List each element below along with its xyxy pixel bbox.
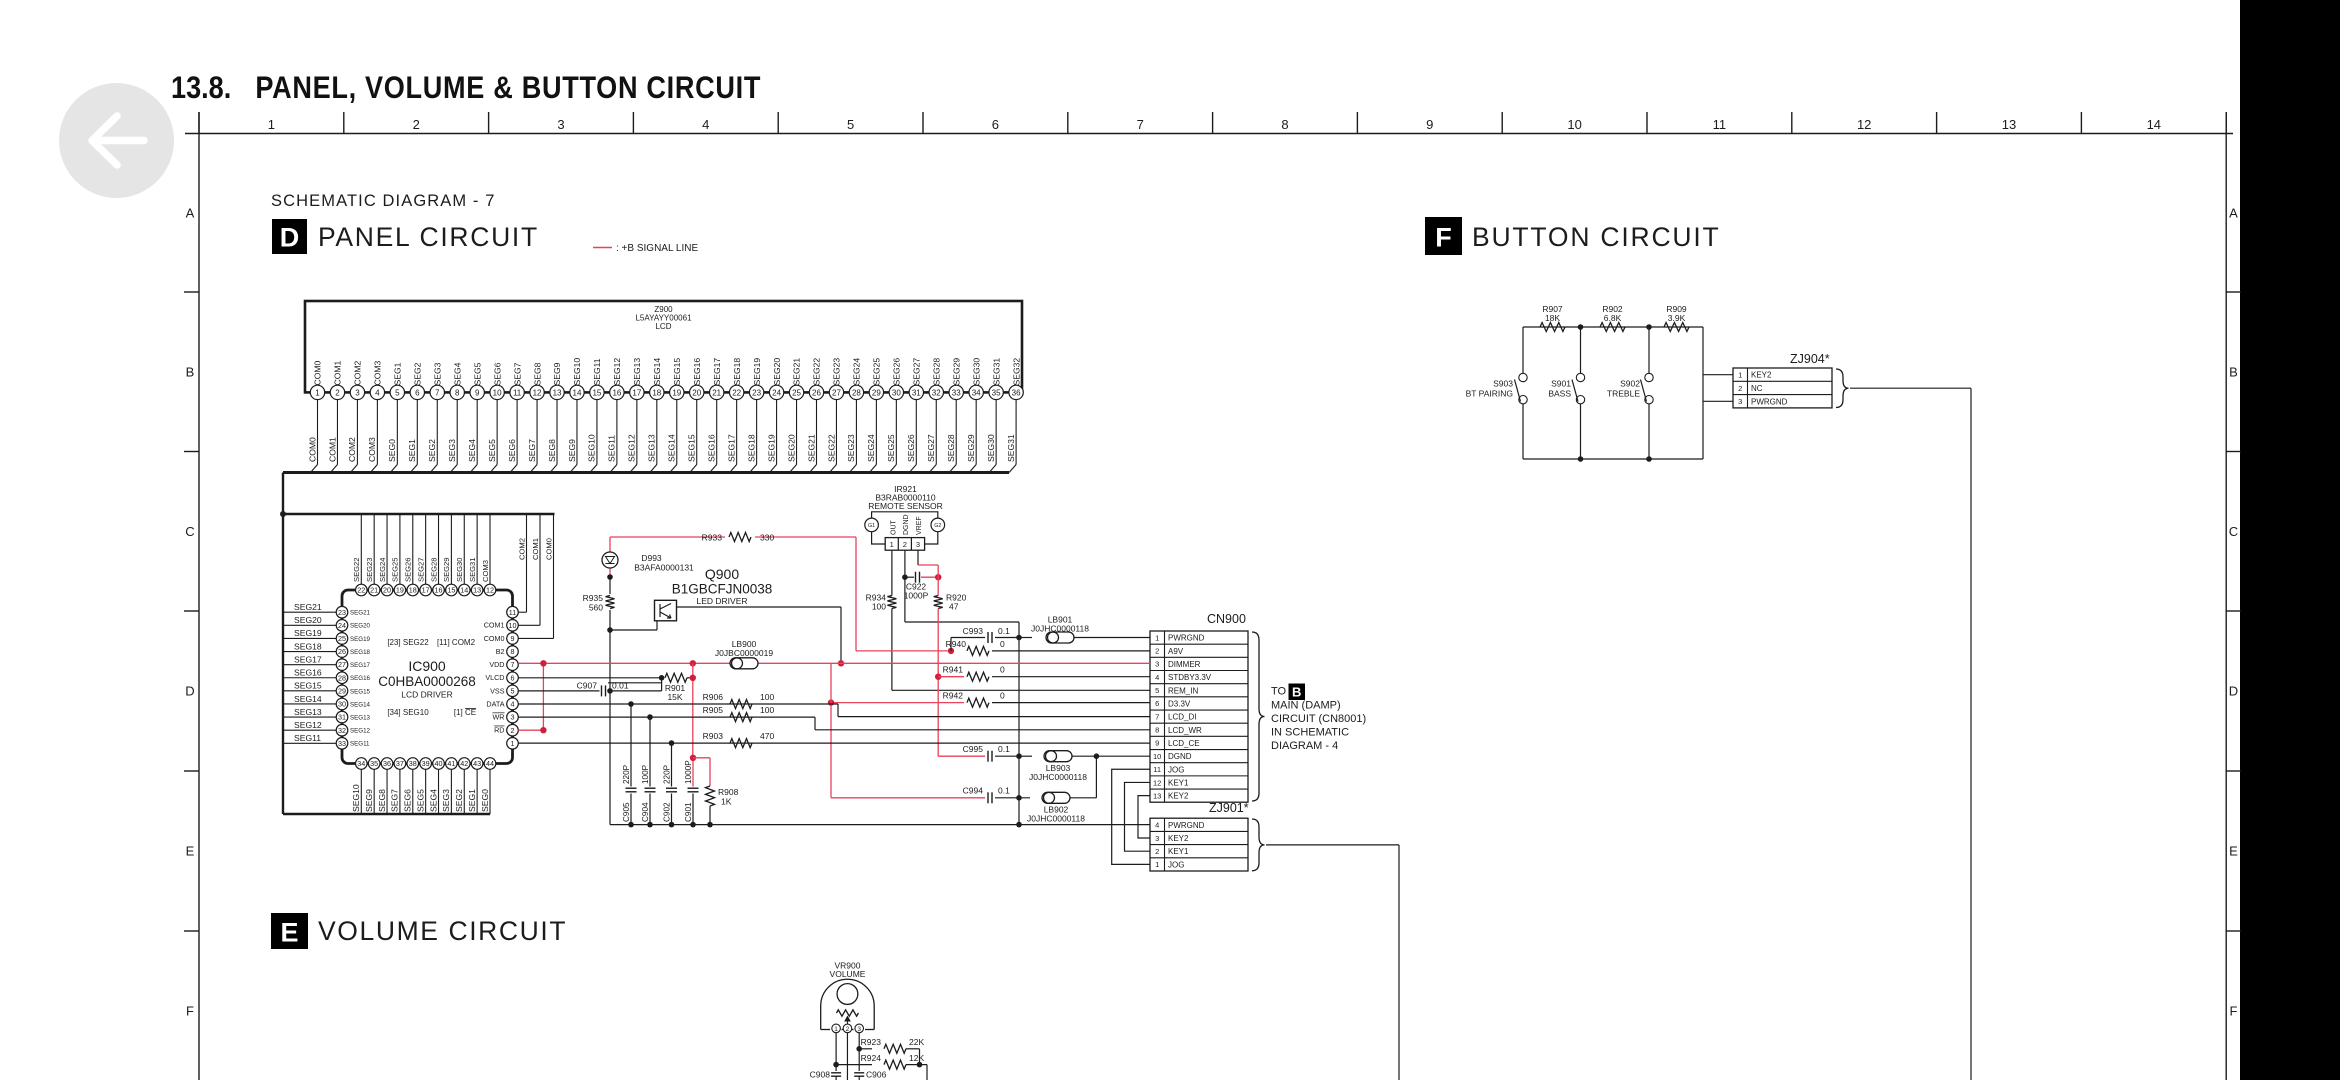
svg-text:SEG22: SEG22: [826, 434, 836, 462]
svg-text:4: 4: [375, 388, 380, 397]
svg-text:LCD_DI: LCD_DI: [1168, 713, 1196, 722]
svg-text:LCD: LCD: [655, 322, 671, 331]
svg-text:SEG14: SEG14: [350, 701, 371, 708]
svg-text:10: 10: [1153, 752, 1161, 761]
svg-text:J0JHC0000118: J0JHC0000118: [1029, 772, 1087, 782]
svg-text:SEG23: SEG23: [846, 434, 856, 462]
svg-text:2: 2: [1738, 384, 1742, 393]
svg-text:21: 21: [370, 586, 378, 595]
svg-text:0.01: 0.01: [612, 680, 629, 690]
svg-text:35: 35: [370, 759, 378, 768]
svg-text:7: 7: [511, 660, 515, 669]
svg-text:19: 19: [672, 388, 681, 397]
svg-text:TREBLE: TREBLE: [1607, 389, 1640, 399]
svg-text:38: 38: [409, 759, 417, 768]
svg-text:6: 6: [992, 117, 999, 132]
svg-text:2: 2: [335, 388, 340, 397]
svg-text:19: 19: [396, 586, 404, 595]
svg-text:SEG0: SEG0: [387, 439, 397, 462]
svg-text:E: E: [280, 918, 298, 948]
svg-text:C907: C907: [577, 680, 598, 690]
svg-text:COM3: COM3: [373, 360, 383, 385]
svg-text:ZJ901*: ZJ901*: [1209, 801, 1249, 815]
svg-text:SEG16: SEG16: [350, 675, 371, 682]
svg-text:COM3: COM3: [481, 560, 490, 582]
svg-text:KEY2: KEY2: [1168, 792, 1189, 801]
svg-text:SEG17: SEG17: [712, 358, 722, 386]
svg-text:SEG23: SEG23: [832, 358, 842, 386]
svg-text:C902: C902: [663, 802, 672, 822]
svg-text:SEG18: SEG18: [746, 434, 756, 462]
svg-text:SEG8: SEG8: [377, 789, 387, 812]
svg-text:MAIN (DAMP): MAIN (DAMP): [1271, 700, 1341, 712]
svg-text:BT PAIRING: BT PAIRING: [1466, 389, 1513, 399]
svg-text:SEG4: SEG4: [452, 362, 462, 385]
svg-text:8: 8: [511, 647, 515, 656]
svg-text:SEG28: SEG28: [946, 434, 956, 462]
svg-text:OUT: OUT: [890, 520, 897, 536]
svg-text:C995: C995: [963, 744, 984, 754]
svg-text:3: 3: [916, 540, 920, 549]
svg-text:14: 14: [460, 586, 468, 595]
svg-text:E: E: [186, 844, 195, 859]
svg-text:9: 9: [511, 634, 515, 643]
svg-text:7: 7: [1155, 712, 1159, 721]
svg-text:SEG18: SEG18: [350, 649, 371, 656]
svg-text:100P: 100P: [641, 764, 650, 784]
svg-text:15: 15: [592, 388, 601, 397]
svg-text:SCHEMATIC DIAGRAM - 7: SCHEMATIC DIAGRAM - 7: [271, 192, 495, 210]
svg-text:4: 4: [702, 117, 709, 132]
svg-text:SEG29: SEG29: [951, 358, 961, 386]
svg-text:12: 12: [1153, 778, 1161, 787]
svg-text:D: D: [2229, 684, 2238, 699]
svg-text:3: 3: [355, 388, 360, 397]
svg-text:6: 6: [1155, 699, 1159, 708]
svg-text:D: D: [280, 223, 300, 253]
svg-text:BASS: BASS: [1548, 389, 1571, 399]
svg-text:A: A: [2229, 206, 2238, 221]
svg-text:RD: RD: [494, 726, 504, 735]
svg-text:SEG21: SEG21: [792, 358, 802, 386]
svg-text:1: 1: [1155, 633, 1159, 642]
svg-text:C994: C994: [963, 786, 984, 796]
svg-text:2: 2: [1155, 647, 1159, 656]
svg-text:R933: R933: [702, 533, 723, 543]
svg-text:REM_IN: REM_IN: [1168, 686, 1198, 695]
svg-text:22: 22: [732, 388, 741, 397]
svg-text:SEG6: SEG6: [403, 789, 413, 812]
svg-text:SEG22: SEG22: [812, 358, 822, 386]
svg-text:SEG14: SEG14: [294, 694, 322, 704]
svg-text:29: 29: [872, 388, 881, 397]
svg-text:27: 27: [832, 388, 841, 397]
svg-text:SEG26: SEG26: [906, 434, 916, 462]
svg-text:2: 2: [903, 540, 907, 549]
svg-text:DGND: DGND: [903, 514, 910, 535]
svg-text:SEG27: SEG27: [912, 358, 922, 386]
svg-text:SEG15: SEG15: [687, 434, 697, 462]
svg-text:F: F: [1435, 223, 1452, 253]
svg-text:B: B: [186, 365, 195, 380]
svg-text:SEG2: SEG2: [427, 439, 437, 462]
svg-text:SEG12: SEG12: [350, 728, 371, 735]
svg-text:25: 25: [792, 388, 801, 397]
svg-text:22K: 22K: [909, 1037, 924, 1047]
svg-text:B2: B2: [496, 647, 505, 656]
svg-text:J0JHC0000118: J0JHC0000118: [1027, 814, 1085, 824]
svg-text:SEG21: SEG21: [350, 610, 371, 617]
svg-text:32: 32: [338, 726, 346, 735]
svg-text:330: 330: [760, 533, 774, 543]
svg-text:12: 12: [533, 388, 542, 397]
svg-text:18: 18: [409, 586, 417, 595]
svg-text:3: 3: [857, 1026, 861, 1033]
svg-text:VDD: VDD: [489, 660, 504, 669]
svg-text:PWRGND: PWRGND: [1168, 634, 1205, 643]
svg-text:SEG25: SEG25: [872, 358, 882, 386]
svg-text:SEG31: SEG31: [1006, 434, 1016, 462]
svg-text:8: 8: [455, 388, 460, 397]
svg-text:BUTTON CIRCUIT: BUTTON CIRCUIT: [1472, 222, 1720, 252]
svg-text:COM2: COM2: [517, 538, 526, 560]
svg-text:SEG14: SEG14: [667, 434, 677, 462]
svg-text:SEG13: SEG13: [647, 434, 657, 462]
svg-text:SEG21: SEG21: [294, 602, 322, 612]
svg-text:6: 6: [511, 673, 515, 682]
svg-text:0: 0: [1000, 691, 1005, 701]
svg-text:14: 14: [573, 388, 582, 397]
svg-text:R903: R903: [703, 731, 724, 741]
svg-text:4: 4: [1155, 821, 1159, 830]
svg-text:SEG12: SEG12: [627, 434, 637, 462]
svg-text:SEG13: SEG13: [294, 707, 322, 717]
svg-text:C904: C904: [641, 802, 650, 822]
svg-text:1: 1: [890, 540, 894, 549]
svg-text:J0JHC0000118: J0JHC0000118: [1031, 624, 1089, 634]
svg-text:10: 10: [509, 621, 517, 630]
svg-text:TO: TO: [1271, 686, 1287, 698]
svg-text:SEG16: SEG16: [692, 358, 702, 386]
svg-text:REMOTE SENSOR: REMOTE SENSOR: [868, 501, 943, 511]
svg-text:SEG14: SEG14: [652, 358, 662, 386]
svg-text:[1] CE: [1] CE: [454, 708, 476, 717]
svg-text:9: 9: [1426, 117, 1433, 132]
svg-text:COM0: COM0: [484, 634, 505, 643]
svg-text:SEG2: SEG2: [454, 789, 464, 812]
svg-text:SEG11: SEG11: [607, 435, 617, 462]
svg-text:SEG9: SEG9: [567, 439, 577, 462]
svg-text:SEG30: SEG30: [986, 434, 996, 462]
svg-text:SEG11: SEG11: [592, 358, 602, 385]
svg-text:COM1: COM1: [333, 360, 343, 385]
svg-text:5: 5: [847, 117, 854, 132]
svg-text:B: B: [2229, 365, 2238, 380]
svg-text:2: 2: [846, 1026, 850, 1033]
svg-text:47: 47: [949, 602, 959, 612]
svg-text:12K: 12K: [909, 1053, 924, 1063]
svg-text:KEY1: KEY1: [1168, 847, 1189, 856]
svg-text:COM1: COM1: [327, 437, 337, 462]
svg-text:16: 16: [612, 388, 621, 397]
svg-text:SEG11: SEG11: [294, 733, 321, 743]
svg-text:SEG17: SEG17: [294, 654, 322, 664]
svg-text:3: 3: [1155, 834, 1159, 843]
svg-text:COM3: COM3: [367, 437, 377, 462]
svg-text:SEG17: SEG17: [726, 434, 736, 462]
svg-text:SEG7: SEG7: [390, 789, 400, 812]
svg-text:R940: R940: [946, 639, 967, 649]
svg-text:SEG1: SEG1: [467, 789, 477, 812]
svg-text:18: 18: [652, 388, 661, 397]
svg-text:C0HBA0000268: C0HBA0000268: [378, 674, 476, 689]
svg-text:6.8K: 6.8K: [1604, 313, 1622, 323]
svg-text:1: 1: [1155, 860, 1159, 869]
svg-text:9: 9: [1155, 739, 1159, 748]
svg-text:SEG24: SEG24: [852, 358, 862, 386]
svg-text:SEG19: SEG19: [350, 636, 371, 643]
svg-text:SEG30: SEG30: [971, 358, 981, 386]
svg-text:560: 560: [589, 603, 603, 613]
svg-text:G1: G1: [868, 523, 875, 529]
svg-text:100: 100: [760, 692, 774, 702]
svg-text:SEG25: SEG25: [886, 434, 896, 462]
svg-text:VOLUME CIRCUIT: VOLUME CIRCUIT: [318, 916, 567, 946]
svg-text:R905: R905: [703, 705, 724, 715]
svg-text:DATA: DATA: [486, 699, 504, 708]
svg-text:C906: C906: [866, 1070, 887, 1080]
svg-text:7: 7: [435, 388, 440, 397]
svg-text:30: 30: [338, 700, 346, 709]
svg-text:37: 37: [396, 759, 404, 768]
svg-text:C901: C901: [684, 802, 693, 822]
svg-text:SEG12: SEG12: [294, 720, 322, 730]
svg-text:R942: R942: [943, 691, 964, 701]
svg-text:SEG24: SEG24: [866, 434, 876, 462]
svg-text:SEG26: SEG26: [404, 558, 413, 582]
svg-text:SEG7: SEG7: [512, 362, 522, 385]
svg-text:VLCD: VLCD: [485, 673, 504, 682]
svg-text:SEG6: SEG6: [507, 439, 517, 462]
svg-text:[11] COM2: [11] COM2: [437, 638, 476, 647]
svg-text:30: 30: [892, 388, 901, 397]
svg-text:SEG2: SEG2: [413, 362, 423, 385]
svg-text:WR: WR: [493, 712, 505, 721]
svg-text:SEG5: SEG5: [487, 439, 497, 462]
svg-text:23: 23: [338, 608, 346, 617]
svg-text:0.1: 0.1: [998, 744, 1010, 754]
svg-text:7: 7: [1137, 117, 1144, 132]
svg-text:SEG25: SEG25: [391, 558, 400, 582]
svg-text:COM2: COM2: [347, 437, 357, 462]
svg-text:2: 2: [511, 726, 515, 735]
svg-text:29: 29: [338, 686, 346, 695]
svg-text:SEG19: SEG19: [294, 628, 322, 638]
svg-text:SEG16: SEG16: [294, 668, 322, 678]
svg-text:SEG10: SEG10: [572, 358, 582, 386]
svg-text:SEG27: SEG27: [416, 558, 425, 582]
svg-text:13: 13: [1153, 791, 1161, 800]
svg-text:R908: R908: [718, 787, 739, 797]
svg-text:34: 34: [357, 759, 365, 768]
svg-text:SEG20: SEG20: [772, 358, 782, 386]
svg-text:SEG1: SEG1: [407, 439, 417, 462]
svg-text:11: 11: [509, 608, 516, 617]
svg-text:J0JBC0000019: J0JBC0000019: [715, 648, 773, 658]
svg-text:SEG26: SEG26: [892, 358, 902, 386]
svg-text:SEG9: SEG9: [552, 362, 562, 385]
svg-text:1000P: 1000P: [904, 591, 929, 601]
svg-text:SEG23: SEG23: [365, 558, 374, 582]
svg-text:F: F: [2230, 1004, 2238, 1019]
svg-text:31: 31: [912, 388, 921, 397]
svg-text:3: 3: [511, 713, 515, 722]
svg-text:36: 36: [383, 759, 391, 768]
svg-text:SEG4: SEG4: [428, 789, 438, 812]
svg-text:SEG22: SEG22: [352, 558, 361, 582]
svg-text:COM2: COM2: [353, 360, 363, 385]
svg-text:2: 2: [413, 117, 420, 132]
svg-text:CIRCUIT (CN8001): CIRCUIT (CN8001): [1271, 713, 1366, 725]
svg-text:1: 1: [834, 1026, 838, 1033]
svg-text:SEG7: SEG7: [527, 439, 537, 462]
svg-text:R941: R941: [943, 665, 964, 675]
svg-text:CN900: CN900: [1207, 612, 1246, 626]
svg-text:SEG19: SEG19: [752, 358, 762, 386]
svg-text:D3.3V: D3.3V: [1168, 699, 1191, 708]
svg-text:SEG31: SEG31: [991, 358, 1001, 386]
svg-text:5: 5: [1155, 686, 1159, 695]
svg-text:33: 33: [338, 739, 346, 748]
svg-text:SEG21: SEG21: [806, 434, 816, 462]
svg-text:C908: C908: [810, 1070, 831, 1080]
svg-text:3.9K: 3.9K: [1668, 313, 1686, 323]
svg-text:SEG3: SEG3: [432, 362, 442, 385]
svg-text:31: 31: [338, 713, 346, 722]
svg-text:E: E: [2229, 844, 2238, 859]
svg-text:8: 8: [1281, 117, 1288, 132]
svg-text:PANEL CIRCUIT: PANEL CIRCUIT: [318, 222, 539, 252]
svg-text:SEG0: SEG0: [480, 789, 490, 812]
svg-text:Q900: Q900: [705, 566, 739, 582]
svg-text:470: 470: [760, 731, 774, 741]
svg-text:11: 11: [1713, 117, 1727, 132]
svg-text:LCD_CE: LCD_CE: [1168, 739, 1200, 748]
svg-text:28: 28: [338, 673, 346, 682]
svg-text:SEG3: SEG3: [441, 789, 451, 812]
svg-text:22: 22: [357, 586, 365, 595]
svg-text:LED DRIVER: LED DRIVER: [696, 596, 747, 606]
svg-text:220P: 220P: [622, 764, 631, 784]
svg-text:20: 20: [692, 388, 701, 397]
svg-text:17: 17: [632, 388, 641, 397]
svg-text:6: 6: [415, 388, 420, 397]
svg-text:24: 24: [338, 621, 346, 630]
svg-text:SEG20: SEG20: [350, 623, 371, 630]
svg-text:34: 34: [972, 388, 981, 397]
svg-text:COM0: COM0: [544, 538, 553, 560]
svg-text:2: 2: [1155, 847, 1159, 856]
svg-text:11: 11: [513, 388, 522, 397]
svg-text:12: 12: [486, 586, 494, 595]
svg-text:SEG29: SEG29: [442, 558, 451, 582]
svg-text:ZJ904*: ZJ904*: [1790, 352, 1830, 366]
svg-text:0.1: 0.1: [998, 786, 1010, 796]
svg-text:21: 21: [712, 388, 721, 397]
svg-text:PWRGND: PWRGND: [1751, 397, 1788, 406]
svg-text:43: 43: [473, 759, 481, 768]
svg-text:SEG24: SEG24: [378, 558, 387, 582]
svg-text:SEG20: SEG20: [786, 434, 796, 462]
svg-text:SEG13: SEG13: [350, 714, 371, 721]
svg-text:R923: R923: [861, 1037, 882, 1047]
svg-text:SEG15: SEG15: [294, 681, 322, 691]
svg-text:1: 1: [1738, 370, 1742, 379]
svg-text:SEG11: SEG11: [350, 741, 370, 748]
svg-text:D993: D993: [641, 553, 662, 563]
svg-text:SEG28: SEG28: [931, 358, 941, 386]
svg-text:SEG10: SEG10: [351, 784, 361, 812]
svg-text:SEG28: SEG28: [429, 558, 438, 582]
svg-text:D: D: [185, 684, 194, 699]
svg-text:SEG27: SEG27: [926, 434, 936, 462]
svg-text:B1GBCFJN0038: B1GBCFJN0038: [672, 582, 773, 597]
svg-text:LCD DRIVER: LCD DRIVER: [401, 690, 452, 700]
svg-text:STDBY3.3V: STDBY3.3V: [1168, 673, 1212, 682]
svg-text:F: F: [186, 1004, 194, 1019]
svg-text:18K: 18K: [1545, 313, 1560, 323]
svg-text:SEG15: SEG15: [672, 358, 682, 386]
svg-text:NC: NC: [1751, 384, 1763, 393]
svg-text:SEG8: SEG8: [547, 439, 557, 462]
svg-text:SEG31: SEG31: [468, 558, 477, 582]
svg-text:SEG1: SEG1: [393, 362, 403, 385]
svg-text:SEG10: SEG10: [587, 434, 597, 462]
svg-text:12: 12: [1857, 117, 1871, 132]
svg-text:SEG18: SEG18: [294, 641, 322, 651]
svg-text:4: 4: [511, 700, 515, 709]
svg-text:LCD_WR: LCD_WR: [1168, 726, 1202, 735]
svg-text:B3AFA0000131: B3AFA0000131: [634, 563, 694, 573]
svg-text:1000P: 1000P: [684, 760, 693, 784]
svg-text:COM0: COM0: [307, 437, 317, 462]
svg-text:1: 1: [268, 117, 275, 132]
svg-text:24: 24: [772, 388, 781, 397]
svg-text:SEG18: SEG18: [732, 358, 742, 386]
svg-text:[34] SEG10: [34] SEG10: [387, 708, 429, 717]
svg-text:39: 39: [422, 759, 430, 768]
svg-text:5: 5: [395, 388, 400, 397]
svg-text:3: 3: [1155, 660, 1159, 669]
svg-text:40: 40: [435, 759, 443, 768]
svg-text:SEG12: SEG12: [612, 358, 622, 386]
svg-text:KEY1: KEY1: [1168, 778, 1189, 787]
svg-text:42: 42: [460, 759, 468, 768]
svg-text:0: 0: [1000, 639, 1005, 649]
svg-text:SEG5: SEG5: [472, 362, 482, 385]
svg-text:C: C: [185, 524, 194, 539]
svg-text:R935: R935: [583, 593, 604, 603]
svg-text:33: 33: [952, 388, 961, 397]
svg-text:SEG15: SEG15: [350, 688, 371, 695]
svg-text:PWRGND: PWRGND: [1168, 821, 1205, 830]
svg-text:26: 26: [338, 647, 346, 656]
svg-text:0: 0: [1000, 665, 1005, 675]
svg-text:13: 13: [473, 586, 481, 595]
svg-text:1K: 1K: [721, 797, 732, 807]
svg-text:R906: R906: [703, 692, 724, 702]
svg-text:25: 25: [338, 634, 346, 643]
